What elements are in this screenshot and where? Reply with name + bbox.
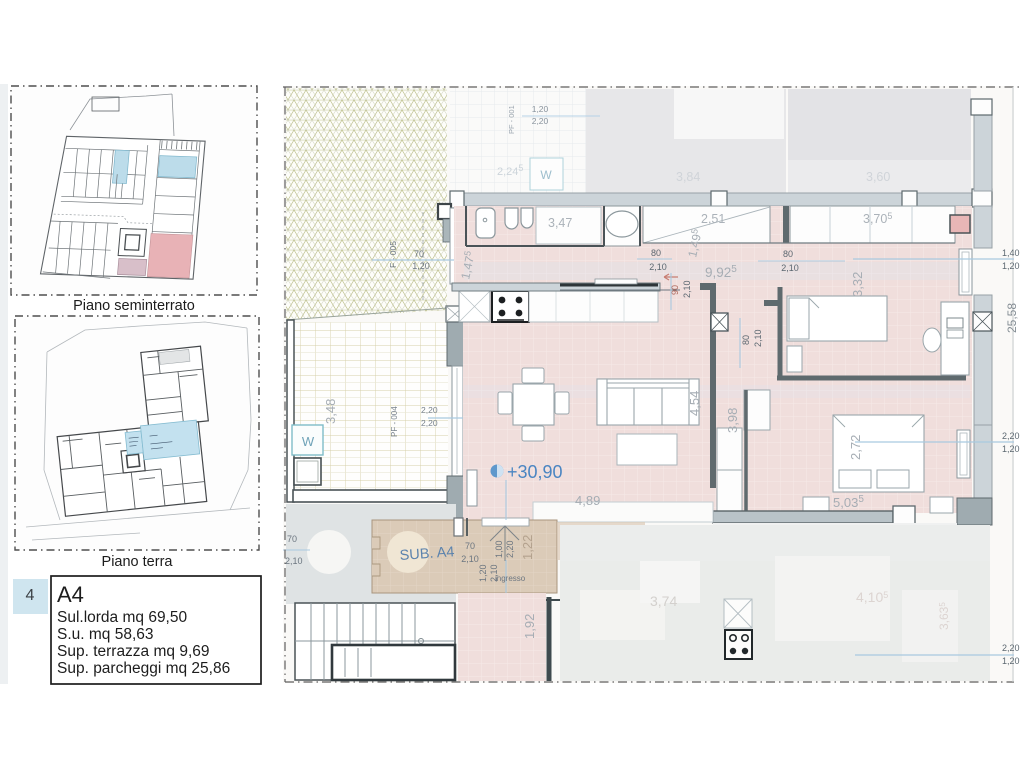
svg-text:Sup. parcheggi mq 25,86: Sup. parcheggi mq 25,86 [57,660,230,677]
svg-text:1,20: 1,20 [478,564,488,582]
svg-text:S.u. mq 58,63: S.u. mq 58,63 [57,626,154,643]
svg-text:2,20: 2,20 [1002,643,1020,653]
svg-text:2,10: 2,10 [781,263,799,273]
svg-text:4,89: 4,89 [575,493,600,508]
svg-text:2,20: 2,20 [421,405,438,415]
svg-text:ingresso: ingresso [495,574,526,583]
svg-text:1,20: 1,20 [1002,656,1020,666]
svg-text:1,92: 1,92 [522,614,537,639]
svg-text:1,20: 1,20 [412,261,430,271]
svg-text:F - 005: F - 005 [388,241,398,268]
svg-text:3,84: 3,84 [676,170,700,184]
svg-text:2,20: 2,20 [421,418,438,428]
svg-text:25,58: 25,58 [1005,303,1019,333]
svg-text:3,98: 3,98 [725,408,740,433]
svg-text:70: 70 [414,249,424,259]
svg-text:2,10: 2,10 [285,556,303,566]
svg-text:3,48: 3,48 [323,399,338,424]
svg-text:2,10: 2,10 [682,280,692,298]
svg-text:80: 80 [741,335,751,345]
svg-text:2,20: 2,20 [1002,431,1020,441]
svg-text:3,60: 3,60 [866,170,890,184]
svg-text:2,20: 2,20 [505,540,515,558]
svg-text:4,54: 4,54 [687,391,702,416]
svg-text:2,10: 2,10 [753,329,763,347]
svg-text:80: 80 [651,248,661,258]
svg-text:2,72: 2,72 [848,435,863,460]
svg-text:W: W [540,168,552,182]
svg-text:1,22: 1,22 [520,535,535,560]
svg-text:Piano terra: Piano terra [102,554,174,570]
svg-text:Piano seminterrato: Piano seminterrato [73,298,195,314]
svg-text:1,20: 1,20 [1002,261,1020,271]
svg-text:70: 70 [287,534,297,544]
svg-text:3,74: 3,74 [650,593,677,609]
svg-text:W: W [302,434,315,449]
svg-text:1,20: 1,20 [1002,444,1020,454]
svg-text:4: 4 [26,587,35,604]
svg-text:PF - 001: PF - 001 [507,105,516,134]
svg-text:3,32: 3,32 [850,272,865,297]
svg-text:Sul.lorda mq 69,50: Sul.lorda mq 69,50 [57,609,187,626]
svg-text:1,40: 1,40 [1002,248,1020,258]
svg-text:Sup. terrazza mq 9,69: Sup. terrazza mq 9,69 [57,643,210,660]
svg-text:+30,90: +30,90 [507,462,563,482]
svg-text:1,00: 1,00 [494,540,504,558]
svg-text:2,10: 2,10 [461,554,479,564]
svg-text:2,10: 2,10 [649,262,667,272]
svg-text:1,20: 1,20 [532,104,549,114]
svg-text:A4: A4 [57,582,84,607]
svg-text:2,20: 2,20 [532,116,549,126]
svg-text:80: 80 [783,249,793,259]
svg-text:2,51: 2,51 [701,212,725,226]
svg-text:PF - 004: PF - 004 [390,406,399,437]
svg-text:70: 70 [465,541,475,551]
svg-text:3,47: 3,47 [548,216,572,230]
